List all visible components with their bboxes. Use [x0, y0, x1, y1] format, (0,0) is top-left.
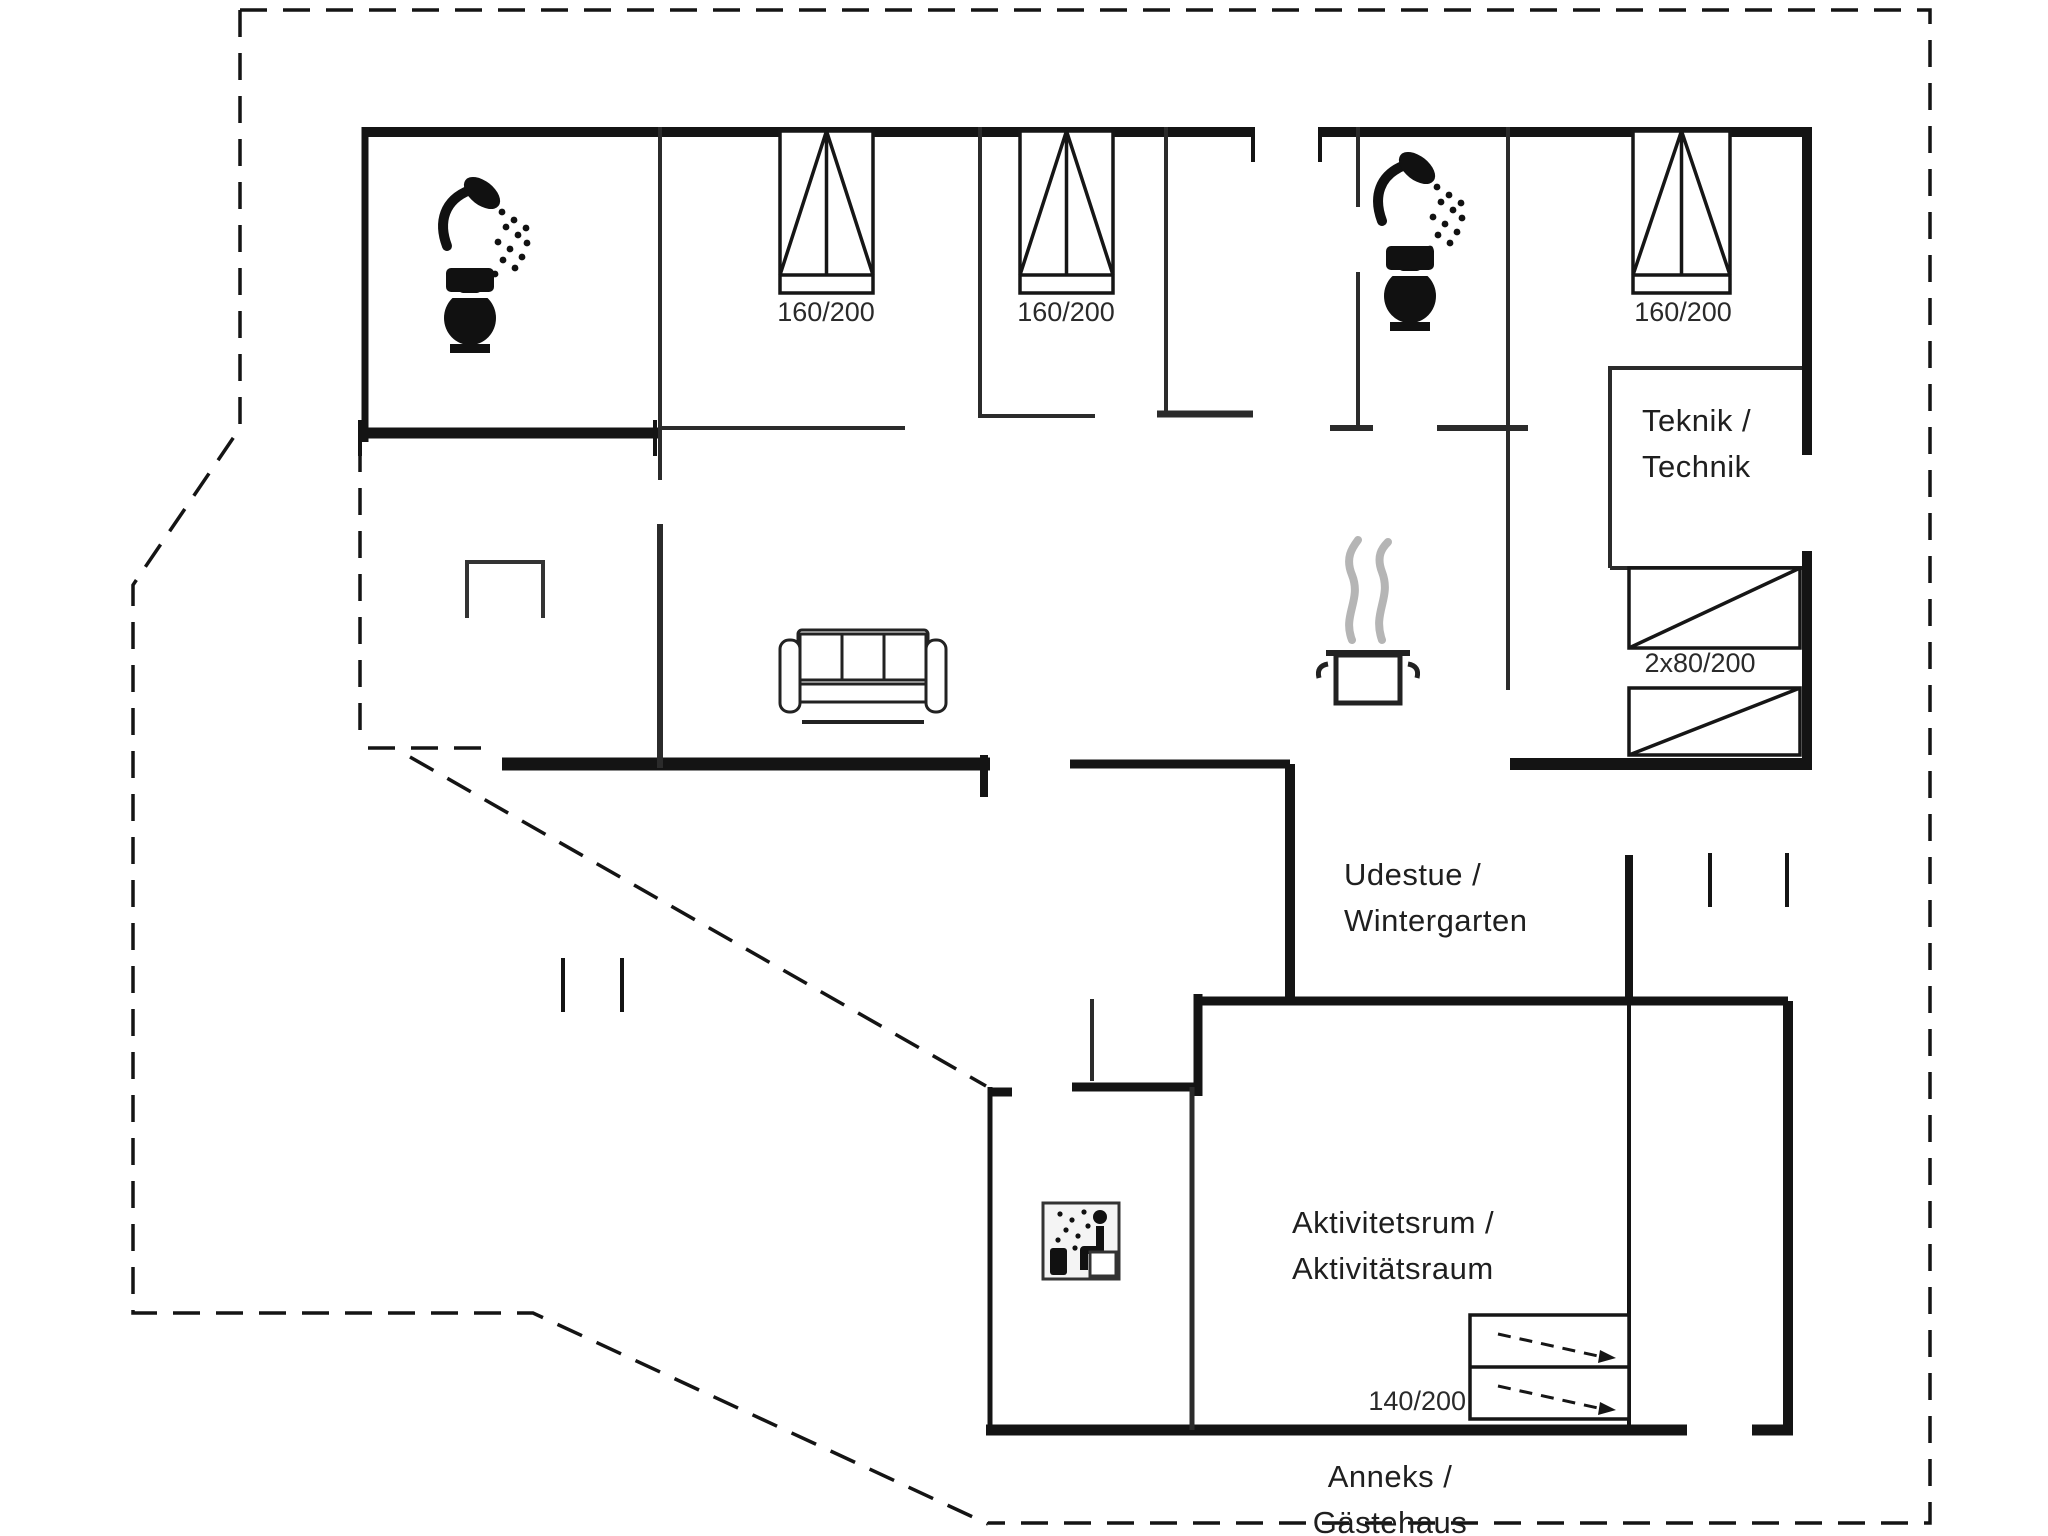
table-icon [467, 562, 543, 618]
double-bed-2 [1020, 131, 1113, 293]
double-bed-3 [1633, 131, 1730, 293]
floor-plan-drawing [0, 0, 2048, 1536]
room-label-udestue: Udestue / Wintergarten [1344, 852, 1527, 944]
floor-plan: 160/200 160/200 160/200 2x80/200 140/200… [0, 0, 2048, 1536]
terrace-dashed-edge [360, 445, 495, 748]
toilet-icon-2 [1384, 246, 1436, 331]
room-label-teknik-line2: Technik [1642, 444, 1751, 490]
room-label-teknik-line1: Teknik / [1642, 398, 1751, 444]
steam [1349, 540, 1358, 640]
stove-icon [1318, 540, 1417, 703]
toilet-icon-1 [444, 268, 496, 353]
bunk-bed-upper [1629, 568, 1800, 648]
room-label-udestue-line1: Udestue / [1344, 852, 1527, 898]
double-bed-1 [780, 131, 873, 293]
shower-icon-2 [1378, 146, 1465, 253]
bed-size-label-3: 160/200 [1634, 299, 1732, 326]
room-label-aktivitetsrum-line2: Aktivitätsraum [1292, 1246, 1494, 1292]
room-label-aktivitetsrum-line1: Aktivitetsrum / [1292, 1200, 1494, 1246]
annex-bed-size-label: 140/200 [1336, 1388, 1466, 1415]
room-label-udestue-line2: Wintergarten [1344, 898, 1527, 944]
room-label-anneks-line2: Gästehaus [1260, 1500, 1520, 1536]
room-label-aktivitetsrum: Aktivitetsrum / Aktivitätsraum [1292, 1200, 1494, 1292]
room-label-anneks-line1: Anneks / [1260, 1454, 1520, 1500]
steam2 [1379, 542, 1388, 640]
bunk-bed-size-label: 2x80/200 [1644, 650, 1755, 677]
room-label-anneks: Anneks / Gästehaus [1260, 1454, 1520, 1536]
bed-size-label-2: 160/200 [1017, 299, 1115, 326]
annex-bed-140 [1470, 1315, 1629, 1419]
sauna-icon [1043, 1203, 1119, 1279]
bed-size-label-1: 160/200 [777, 299, 875, 326]
terrace-diagonal-dashed [410, 757, 986, 1086]
shower-icon-1 [443, 171, 530, 278]
bunk-bed-lower [1629, 688, 1800, 755]
sofa-icon [780, 630, 946, 722]
room-label-teknik: Teknik / Technik [1642, 398, 1751, 490]
